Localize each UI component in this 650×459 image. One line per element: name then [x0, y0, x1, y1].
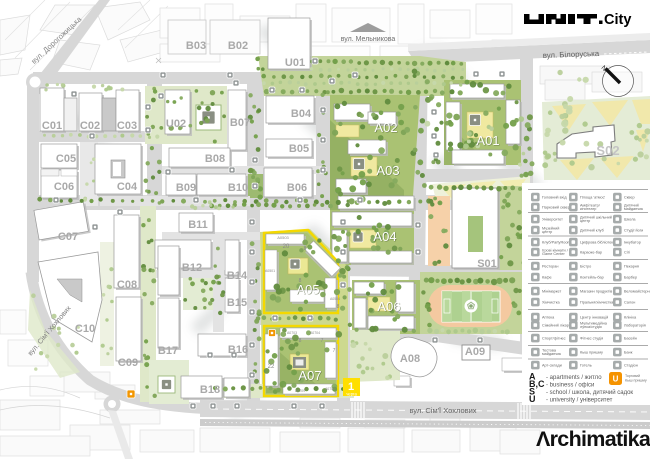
svg-text:B14: B14 [227, 270, 248, 282]
svg-text:кінотеатр: кінотеатр [580, 207, 596, 211]
svg-text:8: 8 [299, 278, 302, 284]
svg-text:B17: B17 [158, 345, 178, 357]
svg-text:Сквер: Сквер [624, 195, 635, 199]
svg-text:A03: A03 [376, 163, 399, 178]
svg-text:вул. Сім'Ї Хохлових: вул. Сім'Ї Хохлових [409, 406, 476, 415]
svg-text:Центр інновацій: Центр інновацій [580, 315, 608, 319]
svg-text:Торговий: Торговий [625, 374, 640, 378]
svg-text:S01: S01 [477, 258, 497, 270]
svg-text:Салон: Салон [624, 300, 635, 304]
svg-text:B05: B05 [289, 143, 309, 155]
svg-text:B10: B10 [228, 182, 248, 194]
svg-text:A0709: A0709 [295, 389, 305, 393]
svg-text:Інкубатор: Інкубатор [624, 240, 641, 244]
svg-text:City: City [604, 12, 631, 28]
svg-text:майданчик: майданчик [542, 352, 561, 356]
svg-text:Студії йоги: Студії йоги [624, 228, 643, 232]
svg-text:Магазин продуктів: Магазин продуктів [580, 289, 612, 293]
svg-text:U: U [529, 394, 536, 404]
svg-text:Game Center: Game Center [542, 252, 566, 256]
svg-text:Кыш пришму: Кыш пришму [625, 379, 647, 383]
svg-text:центр: центр [542, 230, 552, 234]
svg-text:A04: A04 [373, 229, 396, 244]
svg-text:A01: A01 [476, 133, 499, 148]
svg-text:8: 8 [299, 338, 302, 344]
svg-text:Цифрова бібліотека: Цифрова бібліотека [580, 240, 616, 244]
svg-text:B04: B04 [291, 108, 312, 120]
svg-text:Пральня/хімчистка: Пральня/хімчистка [580, 300, 614, 304]
svg-text:S02: S02 [596, 143, 619, 158]
svg-text:C06: C06 [54, 181, 74, 193]
svg-text:- apartments / житло: - apartments / житло [546, 375, 602, 381]
svg-text:A09: A09 [465, 346, 485, 358]
svg-text:вул. Мельникова: вул. Мельникова [341, 36, 396, 43]
svg-text:Площа 'атмос': Площа 'атмос' [580, 195, 606, 199]
svg-text:U: U [613, 375, 619, 384]
svg-text:B08: B08 [205, 153, 225, 165]
svg-text:Коктейль-бар: Коктейль-бар [580, 275, 604, 279]
svg-text:Мінімаркет: Мінімаркет [542, 289, 561, 293]
svg-text:центр: центр [580, 219, 590, 223]
svg-text:C02: C02 [80, 120, 100, 132]
svg-text:Барбер: Барбер [624, 275, 637, 279]
svg-text:C04: C04 [117, 181, 138, 193]
svg-text:Пекарня: Пекарня [624, 264, 639, 268]
svg-text:Лабораторія: Лабораторія [624, 323, 646, 327]
svg-text:Фітнес студія: Фітнес студія [580, 336, 603, 340]
svg-text:Університет: Університет [542, 217, 563, 221]
svg-text:A08: A08 [400, 353, 420, 365]
svg-text:Кафе: Кафе [542, 275, 552, 279]
svg-text:лунка/студія: лунка/студія [580, 325, 602, 329]
svg-text:- business / офіси: - business / офіси [546, 383, 594, 389]
svg-text:Ресторан: Ресторан [542, 264, 559, 268]
svg-text:B02: B02 [228, 40, 248, 52]
svg-text:Бістро: Бістро [580, 264, 591, 268]
svg-text:A0501: A0501 [265, 269, 275, 273]
svg-text:A0504: A0504 [330, 297, 340, 301]
svg-text:B03: B03 [186, 40, 206, 52]
svg-text:C07: C07 [58, 231, 78, 243]
svg-text:8: 8 [337, 304, 340, 310]
svg-text:Арт-склади: Арт-склади [542, 363, 562, 367]
svg-text:Банк: Банк [624, 350, 633, 354]
svg-text:C01: C01 [42, 120, 62, 132]
svg-text:Школа: Школа [624, 217, 636, 221]
svg-text:Караоке-бар: Караоке-бар [580, 250, 602, 254]
svg-text:22: 22 [268, 364, 275, 370]
svg-text:C03: C03 [117, 120, 137, 132]
svg-text:A0503: A0503 [277, 235, 289, 240]
svg-text:Клініка: Клініка [624, 315, 637, 319]
svg-text:B15: B15 [227, 297, 247, 309]
svg-text:Стадіон: Стадіон [624, 363, 638, 367]
svg-text:A07: A07 [298, 368, 321, 383]
svg-text:C10: C10 [75, 323, 95, 335]
svg-text:Клуб/PartyRoom: Клуб/PartyRoom [542, 240, 571, 244]
svg-text:A0703: A0703 [287, 331, 297, 335]
svg-text:Спорт/фітнес: Спорт/фітнес [542, 336, 566, 340]
svg-text:Парковий сквер: Парковий сквер [542, 205, 570, 209]
svg-text:B18: B18 [200, 384, 220, 396]
svg-text:B06: B06 [287, 182, 307, 194]
svg-text:C05: C05 [56, 153, 76, 165]
svg-text:Головний вхід: Головний вхід [542, 195, 567, 199]
svg-text:7: 7 [321, 338, 324, 344]
svg-text:Аптека: Аптека [542, 315, 555, 319]
svg-text:Сімейний лікар: Сімейний лікар [542, 323, 569, 327]
svg-text:20: 20 [283, 244, 290, 250]
svg-text:A05: A05 [296, 282, 319, 297]
svg-text:A02: A02 [374, 120, 397, 135]
svg-text:Басейн: Басейн [624, 336, 637, 340]
svg-text:Хімчистка: Хімчистка [542, 300, 560, 304]
svg-text:черга: черга [346, 391, 357, 396]
svg-text:7: 7 [333, 348, 336, 354]
svg-text:- university / університет: - university / університет [546, 398, 613, 404]
svg-text:A06: A06 [377, 299, 400, 314]
svg-text:A0704: A0704 [310, 331, 320, 335]
svg-text:8: 8 [304, 246, 307, 252]
svg-text:B12: B12 [182, 262, 202, 274]
svg-text:B07: B07 [230, 117, 250, 129]
svg-text:- school / школа, дитячий садо: - school / школа, дитячий садок [546, 389, 633, 396]
svg-text:A0708: A0708 [325, 387, 335, 391]
svg-text:Готель: Готель [580, 363, 592, 367]
svg-text:майданчик: майданчик [624, 207, 643, 211]
svg-text:B16: B16 [228, 344, 248, 356]
svg-text:Λrchimatika: Λrchimatika [536, 427, 650, 451]
svg-text:C08: C08 [117, 279, 137, 291]
svg-text:U02: U02 [166, 118, 186, 130]
svg-text:B11: B11 [188, 219, 208, 231]
svg-text:B09: B09 [176, 182, 196, 194]
svg-text:C09: C09 [118, 357, 138, 369]
svg-text:Сіті: Сіті [624, 250, 630, 254]
svg-text:Веломайстерня: Веломайстерня [624, 289, 650, 293]
svg-text:Дитячий клуб: Дитячий клуб [580, 228, 605, 232]
svg-text:Кыш пришму: Кыш пришму [580, 350, 603, 354]
svg-text:U01: U01 [285, 57, 305, 69]
